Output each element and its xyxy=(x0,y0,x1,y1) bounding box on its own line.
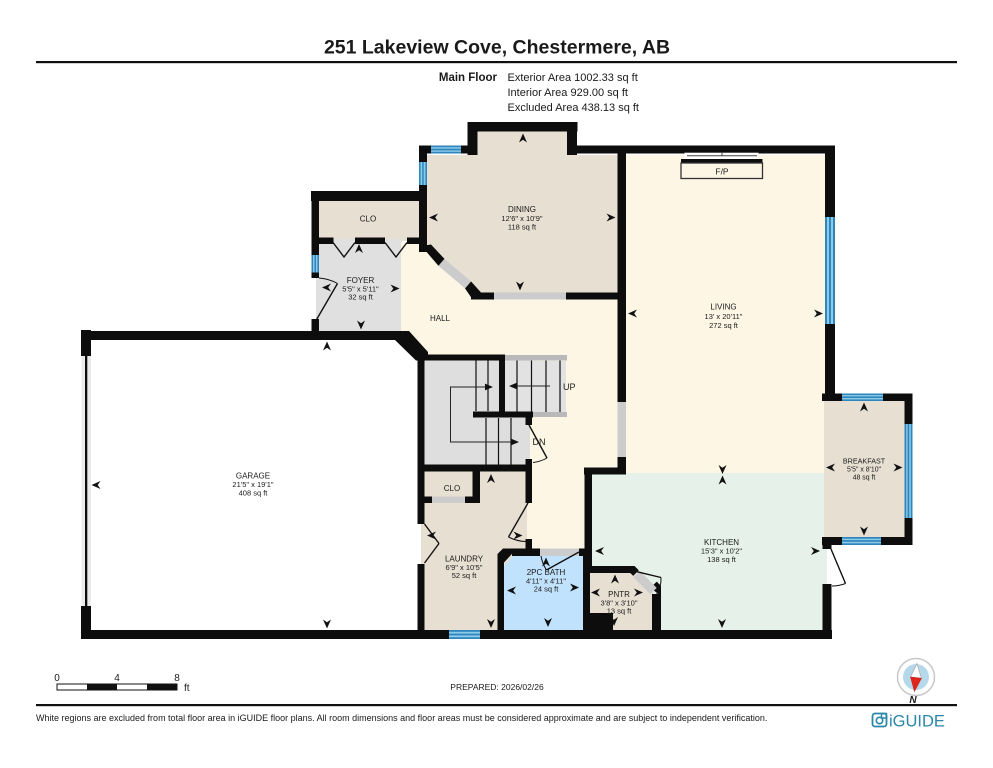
svg-text:13 sq ft: 13 sq ft xyxy=(607,607,633,616)
svg-text:Exterior Area 1002.33 sq ft: Exterior Area 1002.33 sq ft xyxy=(508,72,638,84)
svg-text:0: 0 xyxy=(54,673,60,684)
svg-text:24 sq ft: 24 sq ft xyxy=(534,585,560,594)
svg-text:Interior Area 929.00 sq ft: Interior Area 929.00 sq ft xyxy=(508,87,628,99)
svg-text:ft: ft xyxy=(184,683,190,694)
svg-text:F/P: F/P xyxy=(715,167,729,177)
svg-text:DN: DN xyxy=(533,437,546,447)
svg-text:4: 4 xyxy=(114,673,120,684)
svg-text:UP: UP xyxy=(563,382,576,392)
svg-text:52 sq ft: 52 sq ft xyxy=(452,571,478,580)
svg-text:48 sq ft: 48 sq ft xyxy=(853,475,876,482)
svg-text:272 sq ft: 272 sq ft xyxy=(709,321,739,330)
svg-text:DINING: DINING xyxy=(508,205,536,214)
svg-text:13' x 20'11": 13' x 20'11" xyxy=(705,312,743,321)
svg-text:White regions are excluded fro: White regions are excluded from total fl… xyxy=(36,713,767,723)
svg-text:Excluded Area 438.13 sq ft: Excluded Area 438.13 sq ft xyxy=(508,102,639,114)
svg-text:Main Floor: Main Floor xyxy=(439,72,498,84)
svg-text:408 sq ft: 408 sq ft xyxy=(239,489,269,498)
svg-text:5'5" x 8'10": 5'5" x 8'10" xyxy=(847,467,882,474)
svg-text:32 sq ft: 32 sq ft xyxy=(348,293,374,302)
svg-text:138 sq ft: 138 sq ft xyxy=(707,555,737,564)
svg-text:CLO: CLO xyxy=(360,215,376,224)
svg-text:PREPARED: 2026/02/26: PREPARED: 2026/02/26 xyxy=(450,682,544,692)
svg-text:LIVING: LIVING xyxy=(710,303,736,312)
svg-text:BREAKFAST: BREAKFAST xyxy=(843,457,886,466)
svg-text:CLO: CLO xyxy=(444,484,460,493)
svg-text:118 sq ft: 118 sq ft xyxy=(508,223,537,232)
svg-text:HALL: HALL xyxy=(430,314,451,323)
svg-text:8: 8 xyxy=(174,673,180,684)
svg-text:251 Lakeview Cove, Chestermere: 251 Lakeview Cove, Chestermere, AB xyxy=(324,37,670,59)
svg-text:iGUIDE: iGUIDE xyxy=(889,713,945,731)
